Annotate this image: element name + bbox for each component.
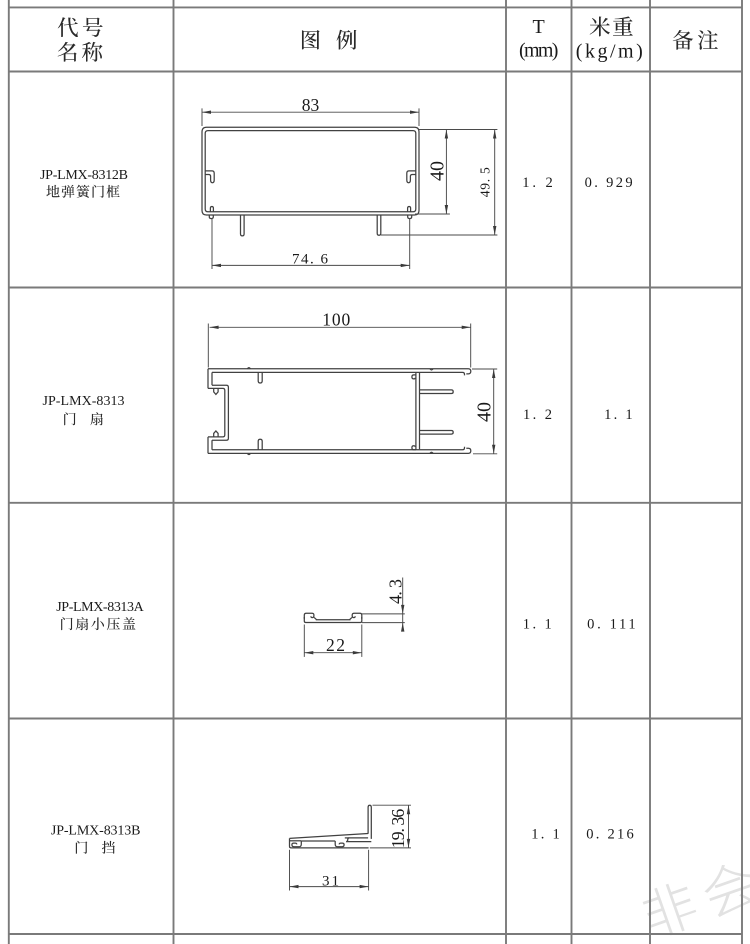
svg-text:19. 36: 19. 36 [388, 809, 408, 849]
svg-text:0. 929: 0. 929 [585, 175, 633, 191]
svg-text:T: T [532, 16, 544, 38]
svg-text:(mm): (mm) [519, 40, 559, 62]
svg-text:40: 40 [427, 161, 449, 181]
svg-text:(kg/m): (kg/m) [576, 40, 643, 62]
svg-text:83: 83 [302, 95, 320, 115]
svg-text:JP-LMX-8313A: JP-LMX-8313A [56, 600, 144, 615]
svg-text:40: 40 [474, 402, 496, 422]
svg-text:0. 216: 0. 216 [586, 827, 634, 843]
svg-text:74. 6: 74. 6 [292, 252, 329, 268]
svg-text:100: 100 [322, 310, 350, 330]
svg-text:JP-LMX-8312B: JP-LMX-8312B [40, 168, 128, 183]
svg-text:4. 3: 4. 3 [386, 579, 406, 604]
svg-text:22: 22 [326, 635, 345, 655]
svg-text:JP-LMX-8313: JP-LMX-8313 [43, 394, 125, 409]
svg-text:JP-LMX-8313B: JP-LMX-8313B [51, 824, 141, 839]
svg-text:49. 5: 49. 5 [477, 167, 492, 197]
